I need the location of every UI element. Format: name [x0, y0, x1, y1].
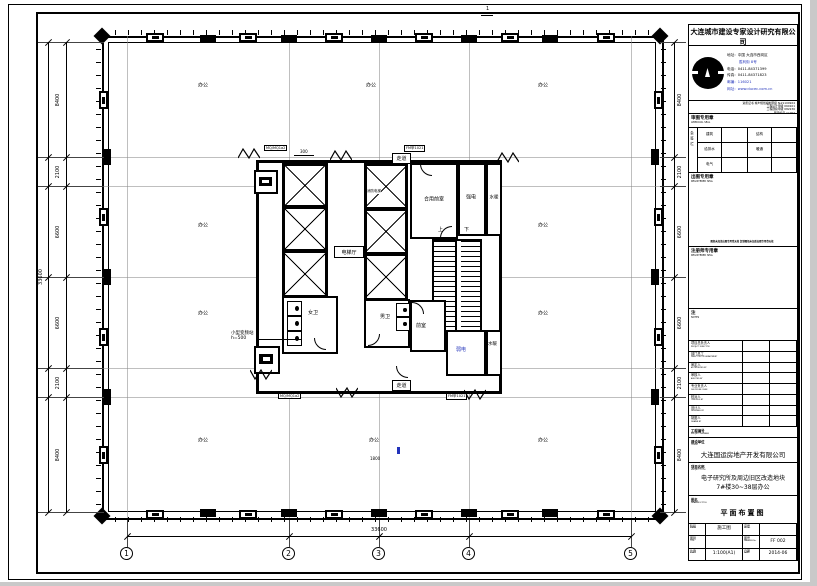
window-symbol [597, 510, 615, 519]
office-label: 办公 [198, 223, 208, 229]
elevator-hall-text: 电梯厅 [341, 249, 356, 256]
elevator-cell [282, 206, 328, 252]
grid-bubble: 1 [120, 547, 133, 560]
huiqian-cell: 给排水 [698, 143, 722, 158]
project-title-line1: 电子研究所及周边旧区改造地块 [691, 473, 795, 482]
shared-lobby-label: 合用前室 [424, 197, 444, 203]
info-value [706, 536, 743, 548]
dim-value-left: 6600 [55, 225, 61, 238]
tb-drawing-title: 图名 DRAWING TITLE 平面布置图 [689, 496, 797, 524]
dim-value-right: 8400 [677, 93, 683, 106]
contact-address2: 胜利街 8号 [727, 59, 795, 66]
elevator-cell [364, 253, 408, 301]
info-label: 日期DATE [743, 549, 760, 561]
office-label: 办公 [538, 83, 548, 89]
contact-tel: 电话：0411-84371399 [727, 66, 795, 73]
tb-personnel: 项目总负责人PROJECT DIRECTOR部门总工DIRECTOR OF DE… [689, 341, 797, 427]
huiqian-label: 电气 [706, 163, 713, 167]
window-symbol [325, 510, 343, 519]
info-value-text: FF 002 [770, 540, 785, 545]
column [281, 509, 297, 517]
office-label: 办公 [538, 311, 548, 317]
breakline-zigzag [250, 368, 272, 381]
personnel-en: AUDITED BY [691, 378, 740, 380]
office-label: 办公 [366, 83, 376, 89]
huiqian-cell [722, 143, 748, 158]
front-room-label: 前室 [416, 324, 426, 330]
water-heating-top-label: 水暖 [490, 197, 499, 202]
huiqian-cell [772, 158, 797, 173]
personnel-en: DISCIPLINE CHIEF [691, 389, 740, 391]
column [200, 509, 216, 517]
personnel-label: 校对人CHECKED BY [689, 395, 743, 406]
grid-bubble: 2 [282, 547, 295, 560]
scan-edge-right [810, 0, 817, 586]
fire-elevator-cell [364, 163, 408, 210]
column [103, 269, 111, 285]
window-symbol [654, 91, 663, 109]
dim-300-line [294, 155, 314, 156]
personnel-signature-cell [770, 406, 797, 417]
personnel-signature-cell [743, 406, 770, 417]
huiqian-cell [722, 128, 748, 143]
personnel-label: 设计人DESIGNED BY [689, 406, 743, 417]
company-logo-slot [718, 71, 724, 74]
column [200, 35, 216, 43]
personnel-label: 项目总负责人PROJECT DIRECTOR [689, 341, 743, 352]
huiqian-cell: 结构 [748, 128, 772, 143]
info-value [760, 524, 797, 536]
project-title-en: PROJECT TITLE [691, 469, 795, 471]
window-symbol [654, 328, 663, 346]
cleaning-fixture-slot [263, 357, 270, 361]
dim-chain-bottom [127, 536, 631, 537]
column [371, 509, 387, 517]
info-label-en: SERIAL [744, 528, 758, 530]
personnel-signature-cell [770, 384, 797, 395]
personnel-signature-cell [743, 373, 770, 384]
door-tag: FM甲1021 [404, 145, 425, 152]
client-value: 大连国运房地产开发有限公司 [691, 449, 795, 459]
dim-value-left: 8400 [55, 448, 61, 461]
tb-huiqian: 会签栏 建筑结构给排水暖通电气 [689, 128, 797, 173]
window-symbol [99, 328, 108, 346]
window-symbol [501, 33, 519, 42]
dim-total-bottom: 33600 [371, 527, 387, 533]
tb-contact: 地址：中国 大连市西岗区 胜利街 8号 电话：0411-84371399 传真：… [689, 46, 797, 101]
personnel-en: CHECKED BY [691, 399, 740, 401]
column [103, 149, 111, 165]
tb-notes: 注 NOTES [689, 309, 797, 341]
huiqian-cell: 建筑 [698, 128, 722, 143]
personnel-signature-cell [770, 341, 797, 352]
info-label-en: STAGE [690, 528, 704, 530]
elevator-cell [364, 208, 408, 255]
breakline-zigzag [464, 388, 486, 401]
info-value: 2014-06 [760, 549, 797, 561]
fold-mark-line [481, 15, 493, 16]
tb-project-title: 项目名称 PROJECT TITLE 电子研究所及周边旧区改造地块 7#楼30~… [689, 463, 797, 496]
dim-value-right: 6600 [677, 225, 683, 238]
contact-web: 网址：www.ducec.com.cn [727, 86, 795, 93]
title-block: 大连城市建设专家设计研究有限公司 DALIAN URBAN CONSTRUCTI… [688, 24, 798, 561]
office-label: 办公 [369, 438, 379, 444]
huiqian-label: 给排水 [704, 148, 715, 152]
window-symbol [415, 33, 433, 42]
personnel-label: 专业负责人DISCIPLINE CHIEF [689, 384, 743, 395]
breakline-zigzag [336, 386, 358, 399]
window-symbol [146, 510, 164, 519]
dim-value-left: 8400 [55, 93, 61, 106]
contact-lines: 地址：中国 大连市西岗区 胜利街 8号 电话：0411-84371399 传真：… [727, 52, 795, 93]
wc-stall [396, 317, 410, 331]
contact-fax: 传真：0411-84371823 [727, 72, 795, 79]
window-symbol [325, 33, 343, 42]
dim-300: 300 [300, 149, 308, 154]
weak-electric-label: 弱电 [456, 348, 466, 354]
tb-project-number: 工程编号 PROJECT NUMBER [689, 427, 797, 438]
drawing-title-value: 平面布置图 [691, 508, 795, 518]
info-value: 施工图 [706, 524, 743, 536]
window-symbol [99, 91, 108, 109]
info-label-en: DATE [744, 553, 758, 555]
office-label: 办公 [538, 438, 548, 444]
breakline-zigzag [238, 147, 260, 160]
drawing-sheet: 1 办公办公办公办公办公办公办公办公办公办公840084002100210066… [0, 0, 817, 586]
huiqian-cell [722, 158, 748, 173]
wc-stall [287, 316, 302, 331]
huiqian-cell [772, 143, 797, 158]
womens-wc-label: 女卫 [308, 311, 318, 317]
office-label: 办公 [198, 438, 208, 444]
corridor-bottom-label: 走道 [392, 380, 411, 391]
info-label: 阶段STAGE [689, 524, 706, 536]
mens-wc-label: 男卫 [380, 315, 390, 321]
info-value-text: 施工图 [717, 527, 731, 532]
tb-reg-seal: 注册师专用章 REGISTERED SEAL [689, 247, 797, 309]
office-label: 办公 [198, 83, 208, 89]
fire-elevator-label: 消防电梯 [367, 190, 381, 194]
personnel-signature-cell [743, 341, 770, 352]
huiqian-label: 结构 [756, 133, 763, 137]
column [461, 35, 477, 43]
project-number-en: PROJECT NUMBER [691, 433, 795, 435]
grid-line-horizontal [102, 397, 662, 398]
dim-value-right: 2100 [677, 376, 683, 389]
dim-value-right: 6600 [677, 316, 683, 329]
tb-plot-seal: 出图专用章 REGISTERED SEAL 图纸未加盖出图专用章无效 复制图纸未… [689, 173, 797, 247]
office-label: 办公 [198, 311, 208, 317]
office-label: 办公 [538, 223, 548, 229]
info-label: 序号SERIAL [743, 524, 760, 536]
personnel-en: DIRECTOR OF DEPARTMENT [691, 356, 740, 358]
huiqian-label: 暖通 [756, 148, 763, 152]
fold-mark: 1 [486, 7, 489, 13]
plot-seal-en: REGISTERED SEAL [691, 180, 795, 183]
stair-down-label: 下 [464, 228, 469, 234]
huiqian-cell: 暖通 [748, 143, 772, 158]
column [542, 509, 558, 517]
corridor-top-text: 走道 [396, 155, 406, 162]
window-symbol [239, 33, 257, 42]
huiqian-side-text: 会签栏 [691, 131, 696, 148]
info-label-en: TYPE [690, 541, 704, 543]
grid-bubble: 5 [624, 547, 637, 560]
info-label: 图号DRAWING No. [743, 536, 760, 548]
info-value: FF 002 [760, 536, 797, 548]
dim-chain-left-total [48, 42, 49, 512]
window-symbol [654, 208, 663, 226]
project-title-line2: 7#楼30~38层办公 [691, 482, 795, 491]
window-symbol [146, 33, 164, 42]
dim-value-left: 2100 [55, 376, 61, 389]
info-label: 比例SCALE [689, 549, 706, 561]
dim-value-right: 8400 [677, 448, 683, 461]
dim-value-right: 2100 [677, 165, 683, 178]
window-tag: MQ/MQ1a2 [264, 145, 287, 151]
tb-info-table: 阶段STAGE施工图序号SERIAL图别TYPE图号DRAWING No.FF … [689, 524, 797, 561]
huiqian-label: 建筑 [706, 133, 713, 137]
column [651, 389, 659, 405]
water-heating-bottom-label: 水暖 [488, 343, 497, 348]
huiqian-cell [748, 158, 772, 173]
window-symbol [99, 208, 108, 226]
column [461, 509, 477, 517]
callout-text: 小型变频站 h=500 [231, 332, 254, 342]
tb-examine-seal: 审图专用章 APPROVAL SEAL [689, 114, 797, 128]
elevator-hall-label: 电梯厅 [334, 246, 364, 258]
column [651, 149, 659, 165]
dim-value-left: 2100 [55, 165, 61, 178]
personnel-signature-cell [743, 363, 770, 374]
window-symbol [99, 446, 108, 464]
scan-edge-bottom [0, 582, 817, 586]
column [651, 269, 659, 285]
window-symbol [501, 510, 519, 519]
info-label: 图别TYPE [689, 536, 706, 548]
tb-certs: 资质证书 城乡规划编制甲级 №21100924工程设计甲级 060101工程勘察… [689, 101, 797, 114]
personnel-signature-cell [743, 416, 770, 427]
notes-en: NOTES [691, 316, 795, 319]
examine-seal-en: APPROVAL SEAL [691, 121, 795, 124]
water-heating-room-bottom [486, 330, 502, 376]
window-tag: MQ/MQ1a2 [278, 393, 301, 399]
column [542, 35, 558, 43]
dim-chain-left [66, 42, 67, 512]
contact-zip: 邮编：116021 [727, 79, 795, 86]
elevator-cell [282, 163, 328, 208]
callout-leader [258, 339, 302, 340]
dim-1800: 1800 [370, 456, 380, 461]
personnel-signature-cell [770, 395, 797, 406]
huiqian-cell: 电气 [698, 158, 722, 173]
info-label-en: DRAWING No. [744, 541, 758, 543]
window-symbol [415, 510, 433, 519]
info-label-en: SCALE [690, 553, 704, 555]
wc-stall [396, 303, 410, 317]
personnel-signature-cell [770, 373, 797, 384]
elevator-cell [282, 250, 328, 298]
window-symbol [654, 446, 663, 464]
breakline-zigzag [497, 151, 519, 164]
plot-seal-note: 图纸未加盖出图专用章无效 复制图纸未加盖出图专用章无效 [690, 239, 794, 243]
stair-divider [455, 241, 461, 333]
corridor-bottom-text: 走道 [396, 382, 406, 389]
curtainwall-mullions-bottom [102, 517, 660, 522]
huiqian-cell [772, 128, 797, 143]
dim-value-left: 6600 [55, 316, 61, 329]
huiqian-side-label: 会签栏 [689, 128, 698, 173]
revision-mark [397, 447, 400, 454]
reg-seal-en: REGISTERED SEAL [691, 254, 795, 257]
personnel-label: 审核人AUDITED BY [689, 373, 743, 384]
corridor-top-label: 走道 [392, 153, 411, 164]
personnel-en: DESIGNED BY [691, 410, 740, 412]
window-symbol [597, 33, 615, 42]
callout-line2: h=500 [231, 336, 246, 341]
grid-line-horizontal [102, 157, 662, 158]
contact-address1: 地址：中国 大连市西岗区 [727, 52, 795, 59]
column [371, 35, 387, 43]
breakline-zigzag [330, 149, 352, 162]
personnel-signature-cell [770, 416, 797, 427]
personnel-signature-cell [743, 384, 770, 395]
personnel-label: 部门总工DIRECTOR OF DEPARTMENT [689, 352, 743, 363]
column [281, 35, 297, 43]
personnel-signature-cell [770, 352, 797, 363]
personnel-signature-cell [770, 363, 797, 374]
wc-stall [287, 301, 302, 316]
tb-company: 大连城市建设专家设计研究有限公司 DALIAN URBAN CONSTRUCTI… [689, 25, 797, 46]
personnel-signature-cell [743, 352, 770, 363]
personnel-en: DRAWN BY [691, 421, 740, 423]
grid-bubble: 3 [372, 547, 385, 560]
company-logo-slot [692, 71, 698, 74]
personnel-label: 审定人AUTHORIZED BY [689, 363, 743, 374]
tb-client: 建设单位 CLIENT 大连国运房地产开发有限公司 [689, 438, 797, 463]
personnel-label: 制图人DRAWN BY [689, 416, 743, 427]
meter-box-slot [262, 180, 269, 183]
info-value: 1:100(A1) [706, 549, 743, 561]
info-value-text: 2014-06 [769, 552, 788, 557]
dim-total-left: 33600 [38, 269, 44, 285]
company-name-cn: 大连城市建设专家设计研究有限公司 [689, 27, 797, 46]
drawing-title-en: DRAWING TITLE [691, 502, 795, 504]
personnel-en: PROJECT DIRECTOR [691, 346, 740, 348]
personnel-en: AUTHORIZED BY [691, 367, 740, 369]
column [103, 389, 111, 405]
personnel-signature-cell [743, 395, 770, 406]
grid-bubble: 4 [462, 547, 475, 560]
dim-chain-right [674, 42, 675, 512]
client-label-en: CLIENT [691, 444, 795, 446]
strong-electric-label: 强电 [466, 195, 476, 201]
info-value-text: 1:100(A1) [713, 552, 735, 557]
window-symbol [239, 510, 257, 519]
